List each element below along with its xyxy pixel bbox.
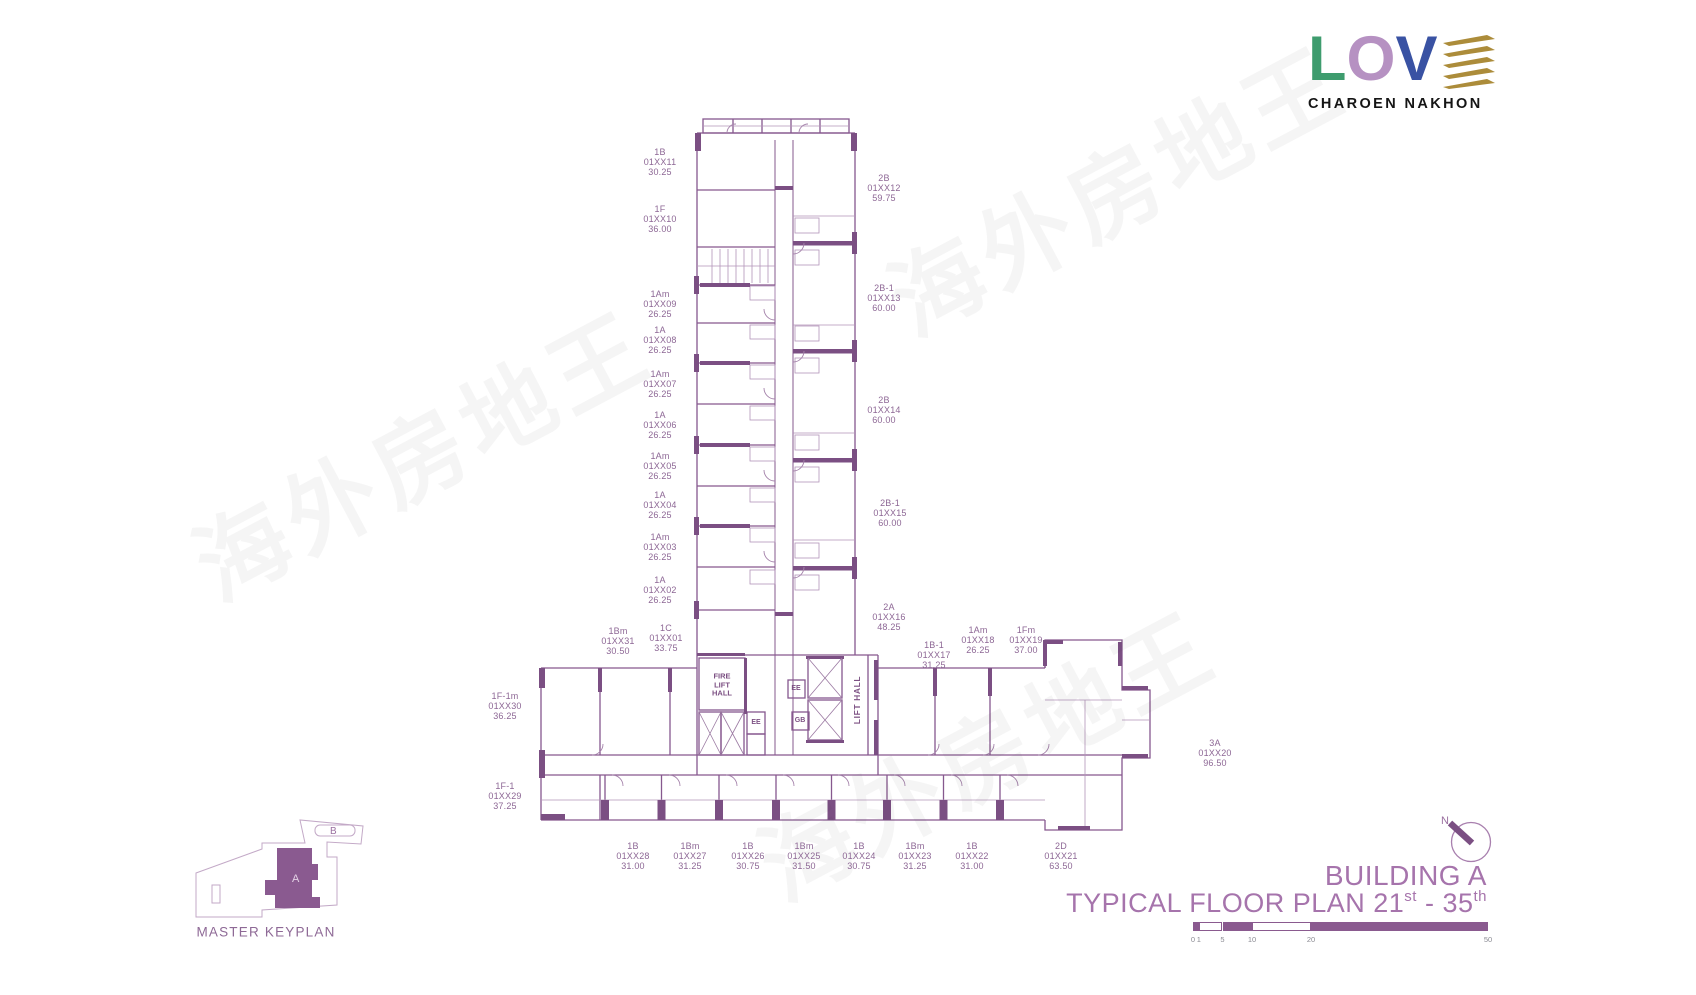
unit-label-01XX29: 1F-101XX2937.25 <box>488 781 521 811</box>
unit-label-01XX25: 1Bm01XX2531.50 <box>787 841 820 871</box>
unit-label-01XX28: 1B01XX2831.00 <box>616 841 649 871</box>
scale-bar-segment <box>1223 922 1253 931</box>
logo-subtitle: CHAROEN NAKHON <box>1308 96 1508 112</box>
scale-bar-segment <box>1311 922 1488 931</box>
unit-label-01XX24: 1B01XX2430.75 <box>842 841 875 871</box>
scale-bar: 015102050 <box>1193 922 1489 931</box>
unit-label-01XX11: 1B01XX1130.25 <box>644 147 677 177</box>
logo-letter-o: O <box>1346 30 1395 88</box>
scale-tick-10: 10 <box>1248 935 1256 944</box>
unit-label-01XX22: 1B01XX2231.00 <box>955 841 988 871</box>
unit-label-01XX16: 2A01XX1648.25 <box>872 602 905 632</box>
scale-tick-20: 20 <box>1307 935 1315 944</box>
scale-bar-segment <box>1199 922 1223 931</box>
unit-label-01XX12: 2B01XX1259.75 <box>867 173 900 203</box>
logo-wordmark: LOV <box>1308 30 1438 88</box>
scale-tick-50: 50 <box>1484 935 1492 944</box>
north-letter: N <box>1441 815 1449 827</box>
scale-tick-0: 0 <box>1191 935 1195 944</box>
unit-label-01XX07: 1Am01XX0726.25 <box>643 369 676 399</box>
unit-label-01XX04: 1A01XX0426.25 <box>643 490 676 520</box>
scale-bar-segment <box>1252 922 1311 931</box>
master-keyplan-label: MASTER KEYPLAN <box>196 925 335 940</box>
unit-label-01XX13: 2B-101XX1360.00 <box>867 283 900 313</box>
unit-label-01XX20: 3A01XX2096.50 <box>1198 738 1231 768</box>
unit-label-01XX23: 1Bm01XX2331.25 <box>898 841 931 871</box>
unit-label-01XX18: 1Am01XX1826.25 <box>961 625 994 655</box>
unit-label-01XX26: 1B01XX2630.75 <box>731 841 764 871</box>
unit-label-01XX27: 1Bm01XX2731.25 <box>673 841 706 871</box>
logo: LOV CHAROEN NAKHON <box>1308 30 1508 112</box>
unit-label-01XX08: 1A01XX0826.25 <box>643 325 676 355</box>
unit-label-01XX19: 1Fm01XX1937.00 <box>1009 625 1042 655</box>
unit-label-01XX21: 2D01XX2163.50 <box>1044 841 1077 871</box>
master-keyplan-drawing: A B <box>180 810 380 925</box>
unit-label-01XX09: 1Am01XX0926.25 <box>643 289 676 319</box>
unit-label-01XX02: 1A01XX0226.25 <box>643 575 676 605</box>
ee-label-1: EE <box>751 719 760 728</box>
unit-label-01XX03: 1Am01XX0326.25 <box>643 532 676 562</box>
unit-label-01XX30: 1F-1m01XX3036.25 <box>488 691 521 721</box>
unit-label-01XX15: 2B-101XX1560.00 <box>873 498 906 528</box>
unit-label-01XX10: 1F01XX1036.00 <box>643 204 676 234</box>
logo-letter-l: L <box>1308 30 1346 88</box>
lift-hall-label: LIFT HALL <box>853 676 862 724</box>
keyplan-building-a-letter: A <box>292 873 300 885</box>
scale-tick-5: 5 <box>1220 935 1224 944</box>
floor-plan-title: TYPICAL FLOOR PLAN 21st - 35th <box>1066 888 1487 919</box>
gb-label: GB <box>795 717 806 726</box>
logo-letter-v: V <box>1396 30 1438 88</box>
logo-stripes-icon <box>1443 35 1495 89</box>
unit-label-01XX05: 1Am01XX0526.25 <box>643 451 676 481</box>
keyplan-building-b-letter: B <box>330 826 337 837</box>
scale-tick-1: 1 <box>1197 935 1201 944</box>
unit-label-01XX14: 2B01XX1460.00 <box>867 395 900 425</box>
fire-lift-hall-label: FIRE LIFT HALL <box>712 672 732 698</box>
north-indicator: N <box>1440 806 1502 866</box>
unit-label-01XX01: 1C01XX0133.75 <box>649 623 682 653</box>
unit-label-01XX31: 1Bm01XX3130.50 <box>601 626 634 656</box>
unit-label-01XX06: 1A01XX0626.25 <box>643 410 676 440</box>
ee-label-2: EE <box>791 685 800 694</box>
unit-label-01XX17: 1B-101XX1731.25 <box>917 640 950 670</box>
